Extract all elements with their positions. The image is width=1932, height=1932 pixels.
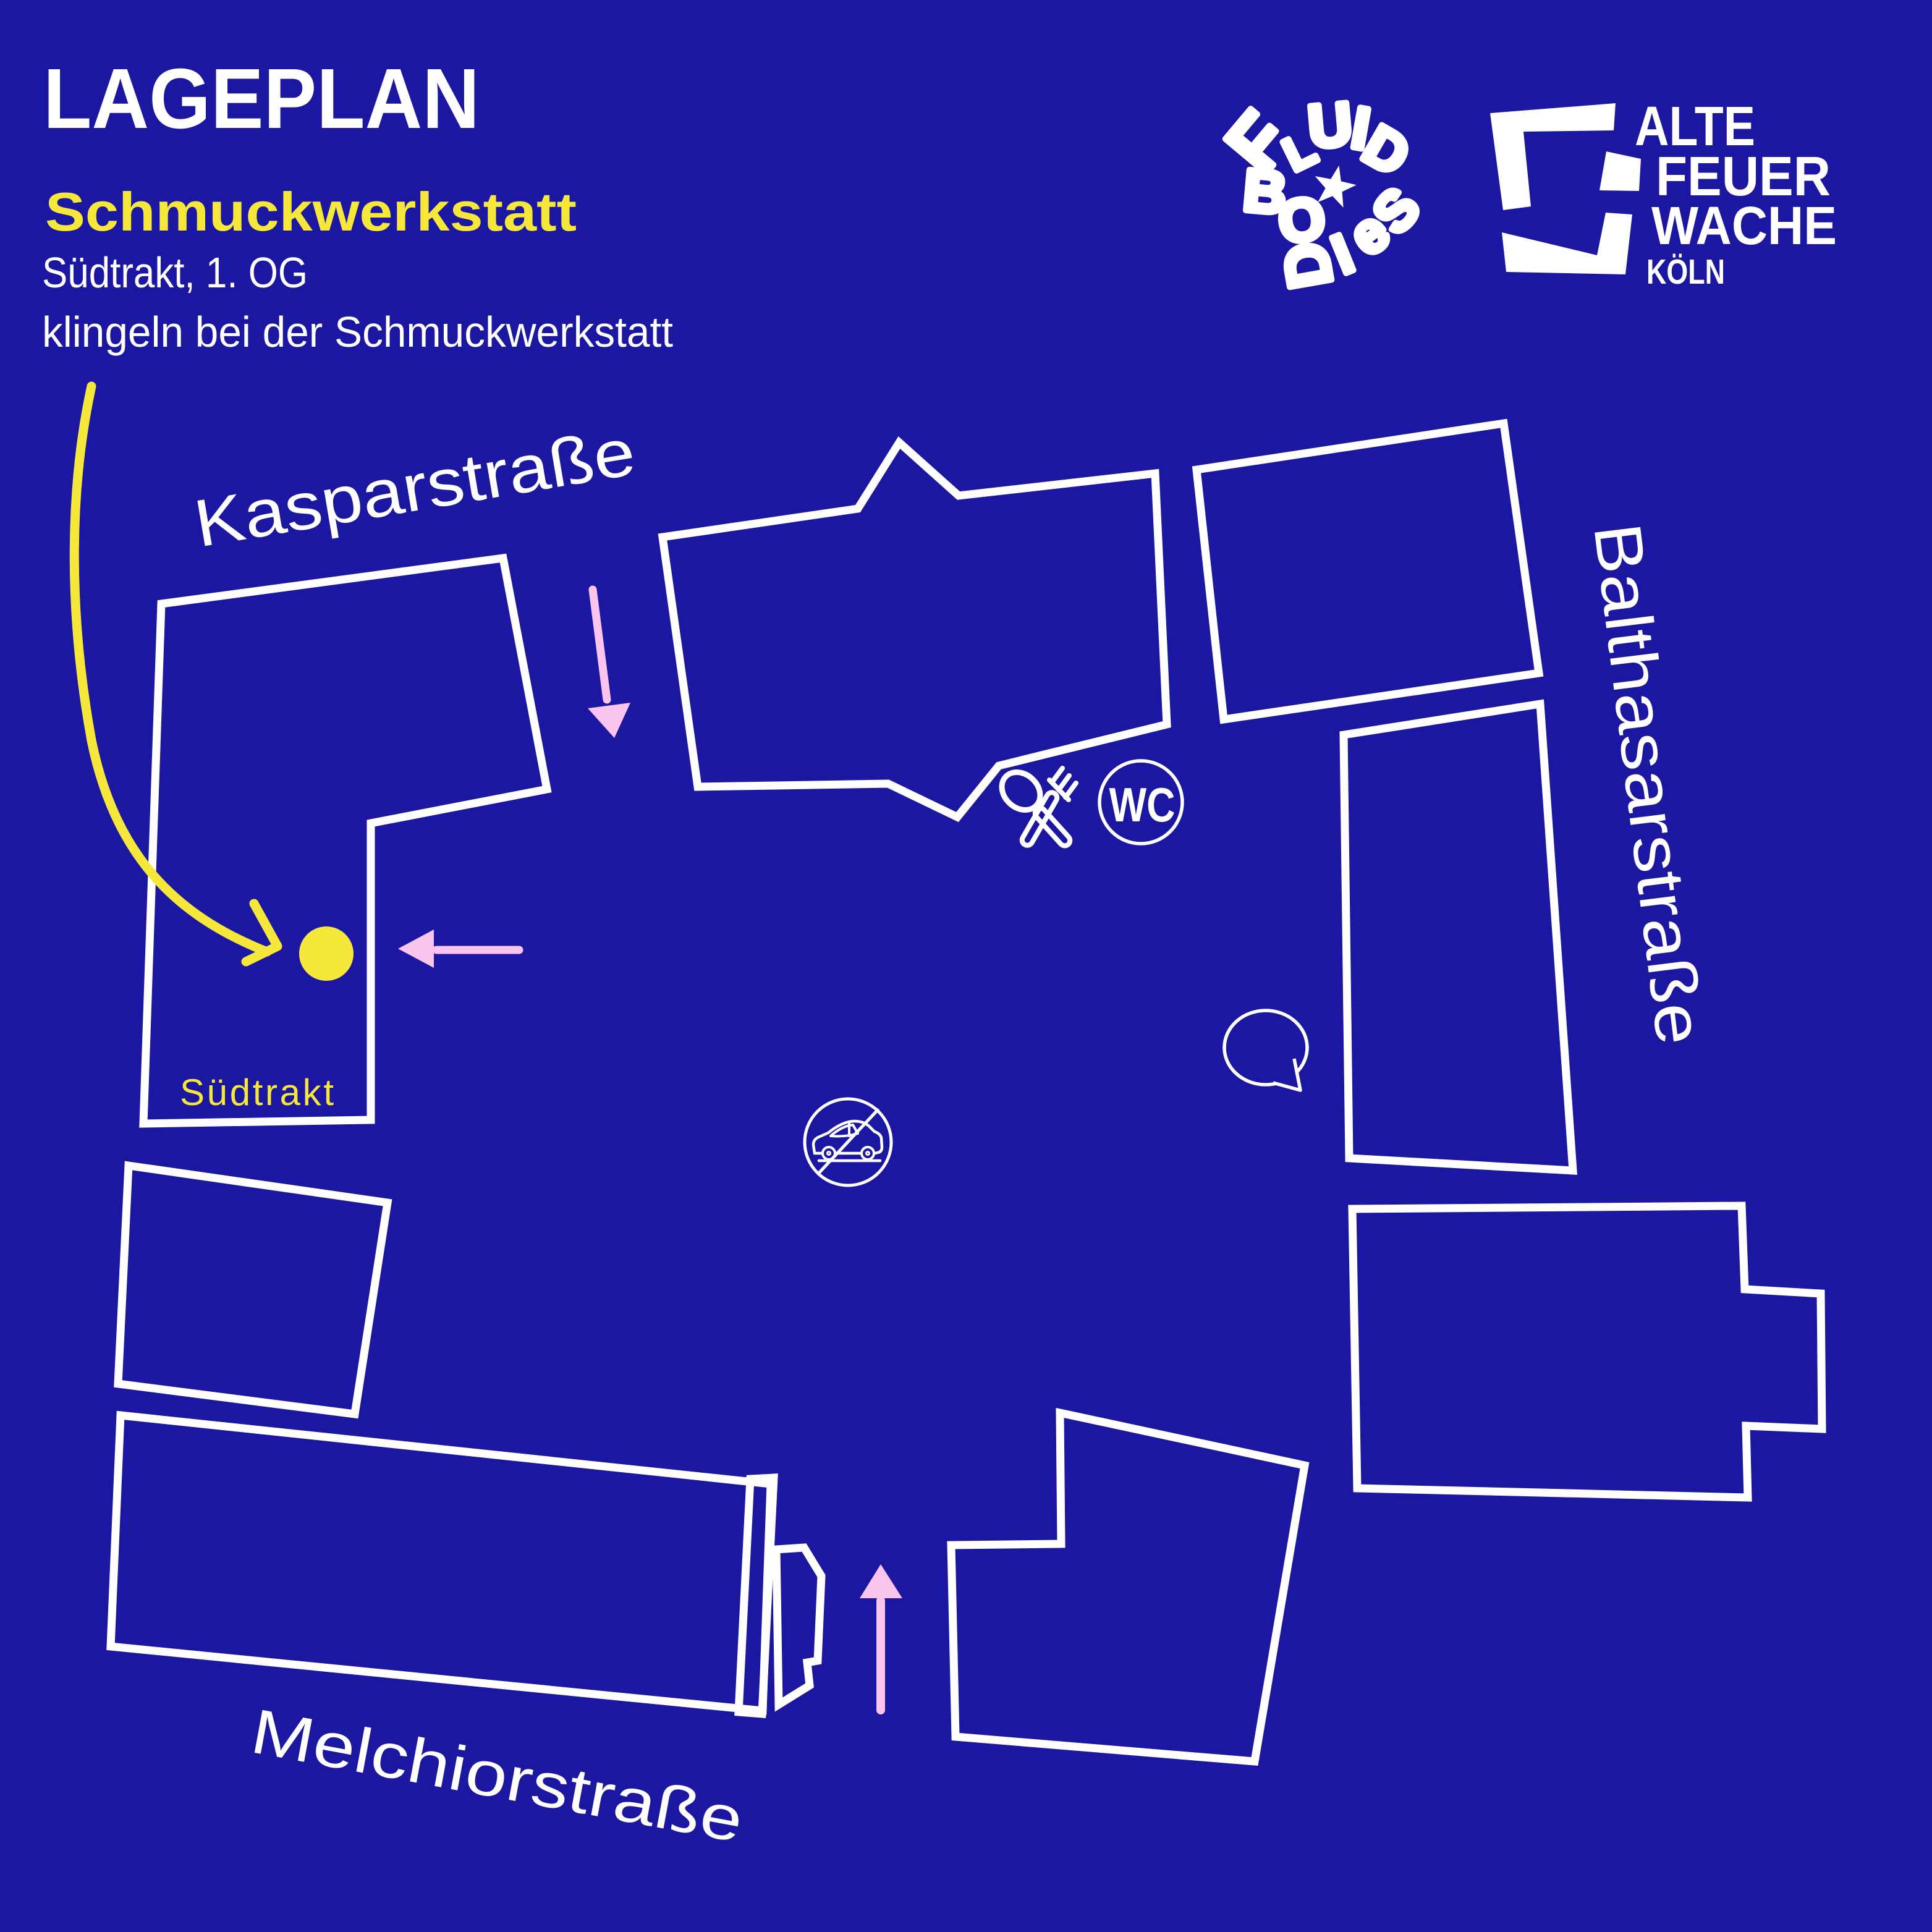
svg-text:Südtrakt, 1. OG: Südtrakt, 1. OG	[42, 248, 308, 297]
svg-text:U: U	[1305, 89, 1355, 161]
svg-text:KÖLN: KÖLN	[1646, 252, 1725, 292]
svg-text:LAGEPLAN: LAGEPLAN	[43, 51, 480, 146]
svg-text:klingeln bei der Schmuckwerkst: klingeln bei der Schmuckwerkstatt	[42, 308, 673, 356]
svg-text:WACHE: WACHE	[1651, 196, 1837, 256]
svg-text:Schmuckwerkstatt: Schmuckwerkstatt	[45, 181, 577, 242]
svg-text:Südtrakt: Südtrakt	[180, 1072, 334, 1113]
svg-text:WC: WC	[1109, 777, 1176, 832]
